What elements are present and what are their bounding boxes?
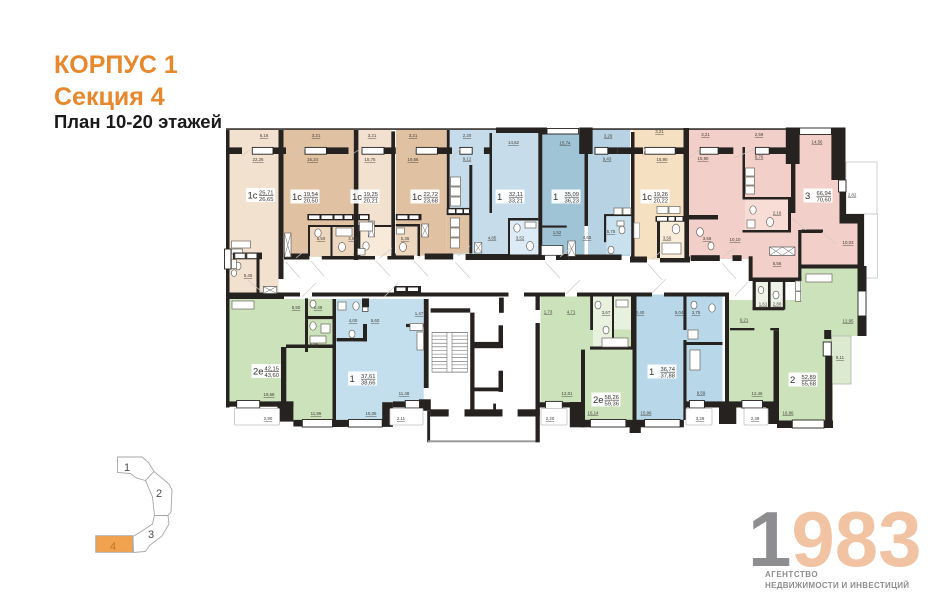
svg-text:55,68: 55,68	[801, 381, 816, 387]
svg-text:15,06: 15,06	[366, 411, 378, 416]
svg-text:5,04: 5,04	[675, 310, 684, 315]
svg-text:3,21: 3,21	[655, 129, 664, 134]
svg-text:2,20: 2,20	[546, 416, 555, 421]
svg-text:32,11: 32,11	[509, 192, 523, 198]
svg-text:2,90: 2,90	[264, 416, 273, 421]
svg-text:36,23: 36,23	[564, 198, 579, 204]
svg-text:1,52: 1,52	[553, 230, 562, 235]
svg-text:2,20: 2,20	[463, 133, 472, 138]
svg-text:5,11: 5,11	[836, 355, 845, 360]
svg-text:2: 2	[790, 375, 795, 386]
svg-text:2: 2	[156, 488, 162, 500]
svg-text:2,80: 2,80	[773, 302, 782, 307]
svg-text:Секция 4: Секция 4	[54, 83, 165, 111]
svg-text:3,21: 3,21	[701, 132, 710, 137]
svg-text:НЕДВИЖИМОСТИ И ИНВЕСТИЦИЙ: НЕДВИЖИМОСТИ И ИНВЕСТИЦИЙ	[765, 581, 909, 590]
svg-text:5,56: 5,56	[773, 261, 782, 266]
svg-text:38,66: 38,66	[361, 380, 376, 386]
svg-text:14,62: 14,62	[508, 140, 520, 145]
svg-text:1,61: 1,61	[759, 302, 768, 307]
svg-text:10,10: 10,10	[730, 237, 742, 242]
svg-text:2,11: 2,11	[397, 416, 406, 421]
svg-text:1: 1	[350, 374, 355, 385]
svg-text:АГЕНТСТВО: АГЕНТСТВО	[765, 570, 818, 579]
svg-text:12,46: 12,46	[752, 391, 764, 396]
svg-text:4,71: 4,71	[567, 310, 576, 315]
svg-text:19,56: 19,56	[408, 157, 420, 162]
svg-text:11,96: 11,96	[311, 411, 322, 416]
svg-text:2е: 2е	[593, 395, 604, 406]
svg-text:70,60: 70,60	[816, 197, 831, 203]
svg-text:3,52: 3,52	[516, 236, 525, 241]
svg-text:2е: 2е	[253, 367, 264, 378]
svg-text:3,56: 3,56	[663, 236, 672, 241]
svg-text:35,09: 35,09	[564, 192, 579, 198]
svg-text:4,85: 4,85	[488, 236, 497, 241]
svg-text:10,03: 10,03	[843, 240, 855, 245]
svg-text:1,47: 1,47	[415, 311, 424, 316]
svg-text:1с: 1с	[412, 192, 422, 203]
svg-text:5,60: 5,60	[371, 318, 380, 323]
svg-text:5,45: 5,45	[244, 273, 253, 278]
svg-text:66,94: 66,94	[816, 191, 831, 197]
svg-text:43,60: 43,60	[264, 373, 279, 379]
svg-text:5,75: 5,75	[607, 229, 616, 234]
svg-text:План 10-20 этажей: План 10-20 этажей	[54, 111, 222, 132]
svg-text:8,76: 8,76	[755, 155, 764, 160]
svg-text:37,88: 37,88	[660, 373, 675, 379]
svg-text:23,68: 23,68	[423, 198, 438, 204]
svg-text:42,15: 42,15	[264, 366, 279, 372]
svg-text:52,89: 52,89	[801, 375, 816, 381]
svg-text:3,29: 3,29	[696, 416, 705, 421]
svg-text:3,29: 3,29	[604, 134, 613, 139]
svg-text:20,22: 20,22	[653, 198, 668, 204]
svg-text:19,25: 19,25	[363, 192, 378, 198]
svg-text:11,48: 11,48	[399, 391, 410, 396]
svg-text:58,26: 58,26	[604, 395, 619, 401]
svg-text:1с: 1с	[642, 192, 652, 203]
svg-text:37,61: 37,61	[361, 374, 376, 380]
svg-text:2,49: 2,49	[751, 416, 760, 421]
svg-text:33,21: 33,21	[508, 198, 523, 204]
svg-text:5,16: 5,16	[260, 133, 269, 138]
svg-text:3,75: 3,75	[692, 310, 701, 315]
svg-text:2,82: 2,82	[848, 193, 857, 198]
svg-text:5,50: 5,50	[317, 236, 326, 241]
svg-text:3: 3	[148, 529, 154, 541]
svg-text:59,36: 59,36	[604, 401, 619, 407]
svg-text:1,48: 1,48	[314, 305, 323, 310]
svg-text:9,59: 9,59	[697, 391, 706, 396]
svg-text:9,43: 9,43	[603, 157, 612, 162]
svg-text:22,26: 22,26	[253, 157, 265, 162]
svg-text:3,21: 3,21	[368, 133, 377, 138]
svg-text:1: 1	[553, 192, 558, 203]
svg-text:12,01: 12,01	[562, 391, 574, 396]
svg-text:25,71: 25,71	[259, 190, 274, 196]
svg-text:1: 1	[497, 192, 502, 203]
svg-text:14,56: 14,56	[812, 140, 824, 145]
svg-text:19,68: 19,68	[264, 392, 276, 397]
svg-text:5,36: 5,36	[401, 236, 410, 241]
svg-text:1с: 1с	[352, 192, 362, 203]
svg-text:1: 1	[649, 367, 654, 378]
svg-text:3,21: 3,21	[312, 133, 321, 138]
svg-text:4: 4	[110, 541, 116, 553]
svg-text:4,00: 4,00	[349, 318, 358, 323]
svg-text:12,95: 12,95	[843, 319, 855, 324]
svg-text:4,65: 4,65	[583, 235, 592, 240]
svg-text:1с: 1с	[248, 191, 258, 202]
svg-text:1: 1	[124, 462, 130, 474]
svg-text:20,50: 20,50	[303, 198, 318, 204]
svg-text:15,90: 15,90	[698, 156, 710, 161]
svg-text:36,74: 36,74	[660, 367, 675, 373]
svg-text:3,52: 3,52	[348, 236, 357, 241]
svg-text:22,72: 22,72	[423, 192, 438, 198]
svg-text:КОРПУС 1: КОРПУС 1	[54, 51, 178, 79]
svg-text:2,40: 2,40	[636, 310, 645, 315]
svg-text:9,12: 9,12	[463, 157, 472, 162]
svg-text:1с: 1с	[292, 192, 302, 203]
svg-text:16,86: 16,86	[783, 411, 795, 416]
svg-text:15,90: 15,90	[657, 157, 669, 162]
svg-text:16,14: 16,14	[588, 411, 600, 416]
svg-text:3: 3	[805, 191, 810, 202]
svg-text:5,50: 5,50	[292, 305, 301, 310]
svg-text:6,21: 6,21	[740, 318, 749, 323]
svg-text:2,16: 2,16	[773, 211, 782, 216]
svg-text:3,21: 3,21	[409, 133, 418, 138]
svg-text:19,26: 19,26	[653, 192, 668, 198]
svg-text:26,65: 26,65	[259, 197, 274, 203]
svg-text:15,75: 15,75	[365, 157, 377, 162]
svg-text:2,59: 2,59	[755, 132, 764, 137]
svg-text:16,24: 16,24	[307, 157, 319, 162]
svg-text:3,67: 3,67	[602, 310, 611, 315]
svg-text:1,73: 1,73	[544, 310, 553, 315]
svg-text:20,21: 20,21	[363, 198, 378, 204]
svg-text:19,54: 19,54	[303, 192, 318, 198]
svg-text:15,96: 15,96	[641, 411, 653, 416]
svg-text:5,95: 5,95	[310, 342, 319, 347]
svg-text:3,56: 3,56	[703, 236, 712, 241]
svg-text:15,74: 15,74	[560, 141, 572, 146]
